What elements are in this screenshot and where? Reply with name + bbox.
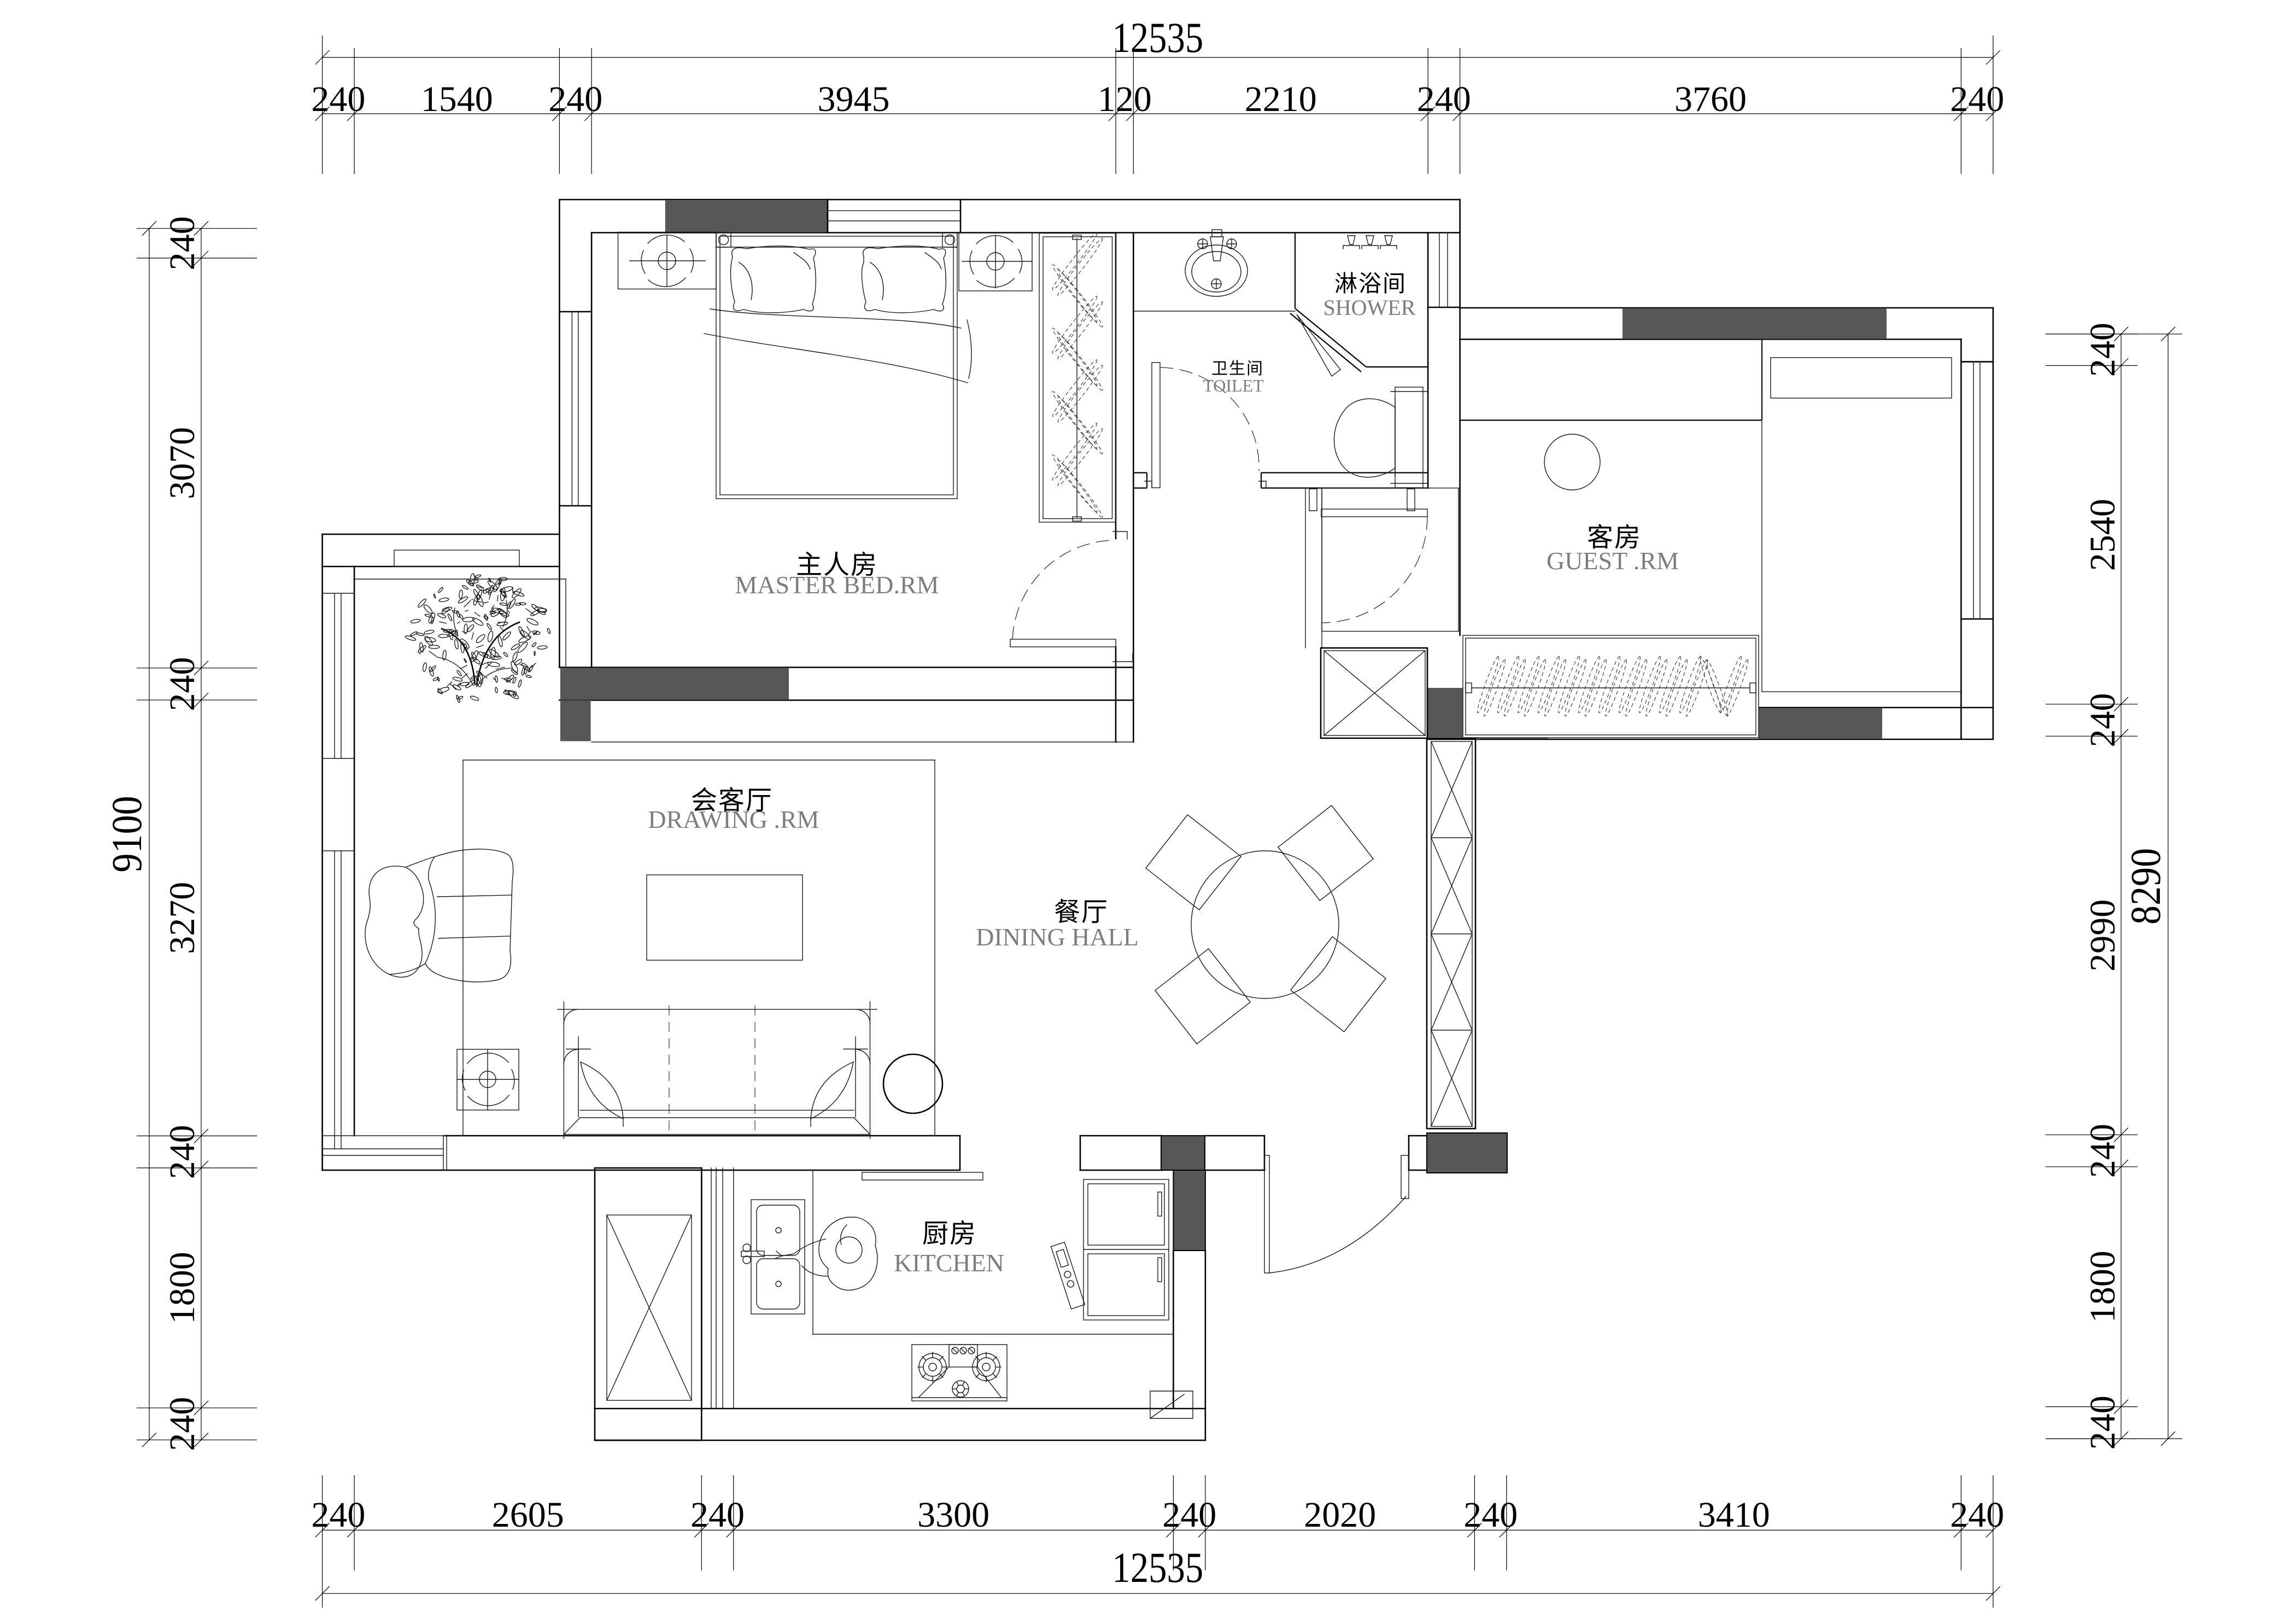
svg-text:240: 240 (162, 216, 202, 270)
svg-text:1540: 1540 (421, 79, 493, 119)
svg-text:3410: 3410 (1698, 1495, 1770, 1535)
svg-text:240: 240 (1463, 1495, 1518, 1535)
svg-text:120: 120 (1098, 79, 1152, 119)
svg-text:SHOWER: SHOWER (1323, 295, 1416, 320)
svg-text:9100: 9100 (103, 796, 150, 873)
svg-text:240: 240 (548, 79, 602, 119)
svg-text:MASTER BED.RM: MASTER BED.RM (735, 571, 939, 599)
svg-text:DRAWING .RM: DRAWING .RM (648, 805, 819, 833)
svg-text:240: 240 (1417, 79, 1471, 119)
svg-text:240: 240 (690, 1495, 745, 1535)
svg-text:GUEST .RM: GUEST .RM (1547, 547, 1679, 575)
svg-text:3760: 3760 (1674, 79, 1747, 119)
svg-text:12535: 12535 (1112, 1544, 1203, 1591)
svg-text:2020: 2020 (1304, 1495, 1376, 1535)
svg-text:240: 240 (1950, 79, 2004, 119)
svg-text:TOILET: TOILET (1203, 376, 1264, 395)
svg-text:DINING HALL: DINING HALL (976, 923, 1139, 951)
svg-text:240: 240 (311, 1495, 365, 1535)
svg-text:厨房: 厨房 (922, 1219, 977, 1248)
svg-text:3300: 3300 (917, 1495, 989, 1535)
svg-text:2990: 2990 (2083, 899, 2123, 972)
svg-text:240: 240 (311, 79, 365, 119)
svg-text:8290: 8290 (2122, 848, 2169, 925)
svg-text:240: 240 (2083, 323, 2123, 377)
svg-text:1800: 1800 (162, 1252, 202, 1324)
svg-text:240: 240 (2083, 1395, 2123, 1450)
svg-text:240: 240 (1162, 1495, 1216, 1535)
svg-text:240: 240 (1950, 1495, 2004, 1535)
svg-text:3270: 3270 (162, 882, 202, 954)
svg-text:240: 240 (2083, 1124, 2123, 1178)
svg-text:240: 240 (2083, 693, 2123, 747)
svg-text:淋浴间: 淋浴间 (1334, 272, 1407, 297)
svg-text:240: 240 (162, 657, 202, 711)
svg-text:KITCHEN: KITCHEN (894, 1249, 1004, 1277)
svg-text:3945: 3945 (818, 79, 890, 119)
svg-text:1800: 1800 (2083, 1251, 2123, 1323)
svg-text:2605: 2605 (492, 1495, 564, 1535)
svg-text:240: 240 (162, 1397, 202, 1451)
svg-text:3070: 3070 (162, 427, 202, 499)
svg-text:2540: 2540 (2083, 499, 2123, 571)
svg-text:12535: 12535 (1112, 14, 1203, 61)
svg-text:2210: 2210 (1245, 79, 1317, 119)
svg-text:240: 240 (162, 1125, 202, 1179)
